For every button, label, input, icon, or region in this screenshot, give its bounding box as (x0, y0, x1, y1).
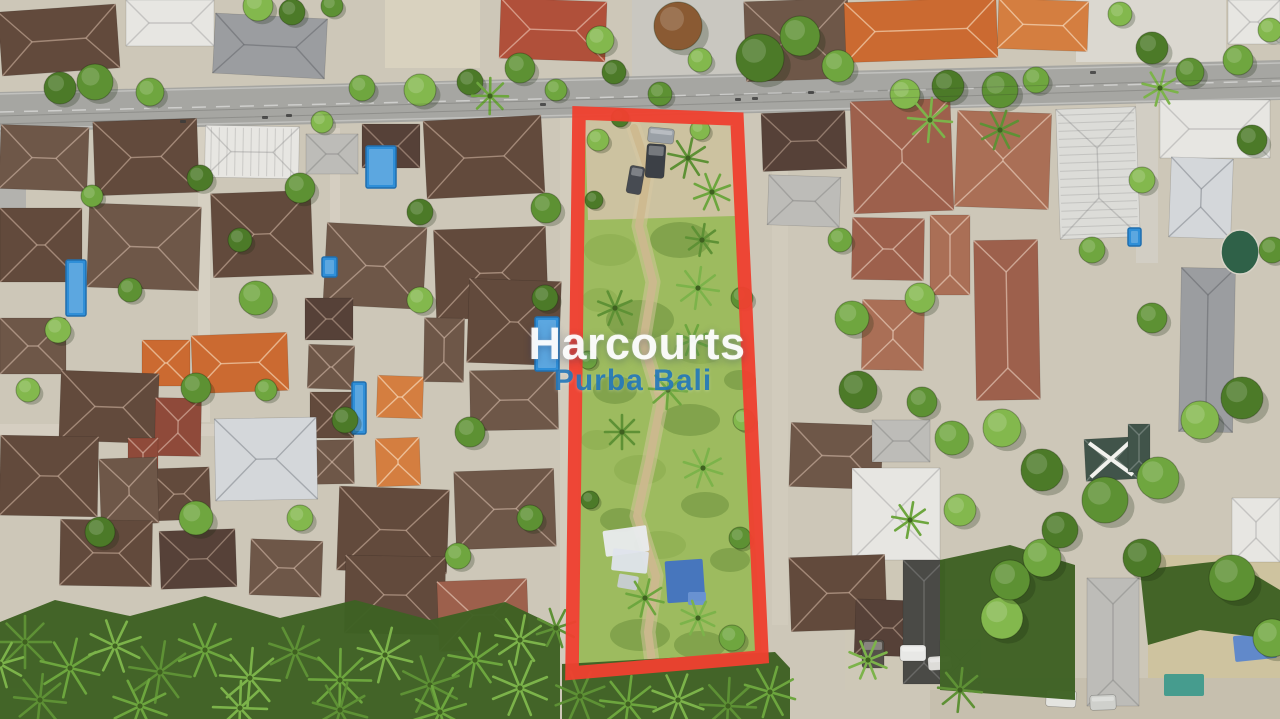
house-roof (974, 239, 1041, 400)
house-roof (1232, 498, 1280, 562)
tree-highlight (722, 628, 735, 641)
pool-water-highlight (1131, 231, 1138, 243)
tree-highlight (231, 230, 243, 242)
palm-crown (695, 615, 700, 620)
grass-patch (593, 376, 637, 404)
tree-highlight (732, 529, 743, 540)
tree-highlight (1111, 4, 1123, 16)
house-roof (126, 0, 214, 46)
palm-crown (700, 465, 705, 470)
roof-surface (844, 0, 998, 63)
palm-crown (685, 155, 690, 160)
palm-crown (577, 693, 582, 698)
tree-highlight (839, 304, 856, 321)
tree-highlight (89, 520, 104, 535)
roof-ridge (822, 456, 850, 457)
tree-highlight (785, 20, 805, 40)
roof-ridge (32, 158, 56, 159)
vehicle-windshield (1092, 697, 1114, 702)
tree-highlight (583, 493, 592, 502)
palm-crown (472, 657, 477, 662)
tree-highlight (587, 193, 596, 202)
palm-tree (309, 649, 371, 711)
palm-tree (472, 78, 508, 114)
tree-highlight (939, 424, 956, 441)
grass-patch (584, 234, 636, 266)
swimming-pool (1221, 230, 1259, 274)
tree-highlight (84, 187, 95, 198)
palm-crown (612, 305, 617, 310)
tree-highlight (1241, 128, 1256, 143)
tree-highlight (121, 280, 133, 292)
tree-highlight (459, 420, 474, 435)
palm-crown (22, 639, 27, 644)
tree-highlight (1258, 623, 1277, 642)
roof-ridge (1201, 189, 1202, 207)
palm-crown (137, 703, 142, 708)
vehicle (900, 645, 926, 661)
pool-water-highlight (325, 260, 334, 274)
grass-patch (681, 492, 729, 518)
tree-highlight (48, 75, 64, 91)
palm-crown (997, 127, 1002, 132)
tree-highlight (691, 50, 703, 62)
palm-frond (668, 371, 669, 390)
roof-ridge (791, 141, 817, 142)
house-roof (850, 98, 954, 213)
tree-highlight (909, 286, 924, 301)
tarp (688, 592, 706, 605)
palm-frond (240, 681, 241, 708)
ground-patch (385, 0, 480, 68)
house-roof (1056, 107, 1140, 240)
palm-frond (340, 649, 341, 680)
roof-ridge (380, 530, 406, 531)
palm-crown (157, 669, 162, 674)
aerial-scene (0, 0, 1280, 719)
tree-highlight (1028, 543, 1047, 562)
tree-highlight (988, 413, 1007, 432)
motorbike (540, 103, 546, 106)
palm-frond (213, 707, 240, 708)
tree-highlight (1082, 240, 1095, 253)
palm-frond (667, 390, 668, 409)
motorbike (735, 98, 741, 101)
roof-ridge (480, 273, 502, 274)
roof-ridge (793, 201, 815, 202)
tree-highlight (548, 81, 559, 92)
palm-crown (699, 237, 704, 242)
tree-highlight (352, 78, 365, 91)
vehicle (645, 143, 666, 178)
tree-highlight (844, 375, 863, 394)
tree-highlight (1180, 61, 1194, 75)
palm-crown (292, 649, 297, 654)
tree-highlight (535, 196, 550, 211)
palm-frond (728, 678, 729, 706)
tree-highlight (410, 290, 423, 303)
tree-highlight (19, 380, 31, 392)
house-roof (306, 134, 358, 174)
tree-highlight (335, 410, 348, 423)
palm-tree (605, 415, 639, 449)
house-roof (307, 344, 355, 390)
palm-crown (247, 675, 252, 680)
house-roof (872, 420, 930, 462)
house-roof (930, 215, 970, 295)
house-roof (844, 0, 998, 63)
tree-highlight (1226, 381, 1247, 402)
tree-highlight (520, 508, 533, 521)
house-roof (0, 435, 99, 517)
palm-crown (237, 705, 242, 710)
house-roof (954, 110, 1051, 209)
house-roof (469, 369, 558, 431)
tree-highlight (660, 7, 684, 31)
tree-highlight (948, 497, 964, 513)
house-roof (423, 318, 464, 383)
tree-highlight (605, 62, 617, 74)
aerial-listing-photo: Harcourts Purba Bali (0, 0, 1280, 719)
palm-crown (675, 697, 680, 702)
tree-highlight (936, 73, 952, 89)
tree-highlight (410, 202, 423, 215)
palm-crown (907, 517, 912, 522)
motorbike (1090, 71, 1096, 74)
house-roof (305, 298, 353, 340)
tree-highlight (140, 81, 154, 95)
roof-ridge (189, 559, 207, 560)
tree-highlight (1215, 560, 1238, 583)
house-roof (997, 0, 1089, 52)
tree-highlight (911, 390, 926, 405)
palm-frond (668, 390, 687, 391)
roof-ridge (494, 509, 516, 510)
tree-highlight (408, 77, 424, 93)
palm-crown (709, 189, 714, 194)
palm-frond (700, 705, 728, 706)
tree-highlight (448, 546, 461, 559)
palm-crown (642, 595, 647, 600)
palm-crown (337, 707, 342, 712)
tree-highlight (243, 284, 260, 301)
house-roof (59, 370, 159, 443)
vehicle (1090, 695, 1117, 711)
palm-frond (728, 706, 756, 707)
palm-crown (625, 701, 630, 706)
house-roof (767, 175, 841, 227)
house-roof (249, 539, 323, 597)
tree-highlight (1128, 543, 1147, 562)
tree-highlight (590, 131, 601, 142)
palm-frond (240, 708, 267, 709)
tree-highlight (1140, 35, 1156, 51)
tree-highlight (987, 76, 1005, 94)
palm-crown (517, 685, 522, 690)
tree-highlight (183, 504, 200, 521)
house-roof (454, 468, 557, 549)
grass-patch (674, 336, 726, 364)
tree-highlight (651, 84, 663, 96)
tree-highlight (1261, 20, 1273, 32)
palm-crown (927, 117, 932, 122)
tree-highlight (590, 29, 604, 43)
house-roof (1169, 157, 1234, 239)
palm-crown (202, 647, 207, 652)
vehicle (647, 127, 674, 145)
motorbike (752, 97, 758, 100)
tree-highlight (986, 601, 1007, 622)
house-roof (154, 398, 201, 457)
palm-crown (67, 665, 72, 670)
tree-highlight (1088, 482, 1111, 505)
palm-crown (337, 677, 342, 682)
house-roof (851, 217, 924, 280)
tree-highlight (1047, 516, 1065, 534)
palm-frond (340, 680, 371, 681)
tree-highlight (258, 381, 269, 392)
palm-crown (517, 637, 522, 642)
house-roof (99, 457, 159, 525)
tarp (1164, 674, 1204, 696)
house-roof (423, 115, 545, 199)
palm-crown (382, 652, 387, 657)
tree-highlight (1132, 170, 1145, 183)
grass-patch (610, 619, 670, 651)
tree-highlight (1026, 453, 1047, 474)
palm-frond (309, 679, 340, 680)
tree-highlight (1227, 48, 1242, 63)
palm-crown (957, 687, 962, 692)
roof-ridge (366, 266, 384, 267)
house-roof (376, 375, 423, 419)
tree-highlight (282, 2, 295, 15)
tree-highlight (742, 39, 766, 63)
house-roof (0, 124, 89, 191)
palm-crown (553, 625, 558, 630)
house-roof (205, 125, 300, 179)
house-roof (93, 118, 200, 196)
palm-crown (619, 429, 624, 434)
tree-highlight (289, 176, 304, 191)
palm-crown (767, 689, 772, 694)
tree-highlight (826, 53, 842, 69)
house-roof (761, 111, 847, 172)
pool-water-highlight (369, 149, 393, 185)
roof-ridge (827, 593, 849, 594)
roof-ridge (254, 234, 270, 235)
tree-highlight (1141, 306, 1156, 321)
tree-highlight (1026, 70, 1039, 83)
house-roof (852, 468, 940, 560)
palm-crown (37, 697, 42, 702)
palm-crown (665, 387, 670, 392)
tree-highlight (185, 376, 200, 391)
house-roof (214, 417, 317, 501)
tree-highlight (1142, 461, 1163, 482)
motorbike (180, 120, 186, 123)
tree-highlight (190, 168, 203, 181)
tree-highlight (82, 68, 100, 86)
tree-highlight (995, 564, 1015, 584)
tree-highlight (1262, 240, 1275, 253)
house-roof (375, 437, 421, 487)
palm-crown (437, 709, 442, 714)
palm-crown (112, 643, 117, 648)
grass-patch (710, 548, 750, 572)
tree-highlight (509, 56, 524, 71)
house-roof (87, 203, 202, 291)
roof-ridge (130, 247, 158, 248)
tree-highlight (1186, 405, 1205, 424)
pool-water-highlight (69, 263, 83, 313)
tree-highlight (48, 320, 61, 333)
grass-patch (660, 404, 720, 436)
roof-ridge (278, 568, 294, 569)
vehicle-windshield (902, 647, 924, 651)
palm-crown (689, 337, 694, 342)
palm-crown (487, 93, 492, 98)
vehicle-windshield (648, 146, 664, 157)
palm-crown (865, 657, 870, 662)
palm-crown (725, 703, 730, 708)
tree-highlight (460, 72, 473, 85)
palm-crown (695, 285, 700, 290)
roof-surface (997, 0, 1089, 52)
tree-highlight (535, 288, 548, 301)
tree-highlight (831, 230, 843, 242)
house-roof (1087, 578, 1139, 706)
palm-frond (649, 389, 668, 390)
pool-water-highlight (538, 320, 556, 368)
roof-ridge (95, 407, 123, 408)
house-roof (213, 13, 328, 79)
tree-highlight (290, 508, 303, 521)
palm-tree (0, 616, 51, 668)
tarp (611, 548, 649, 574)
